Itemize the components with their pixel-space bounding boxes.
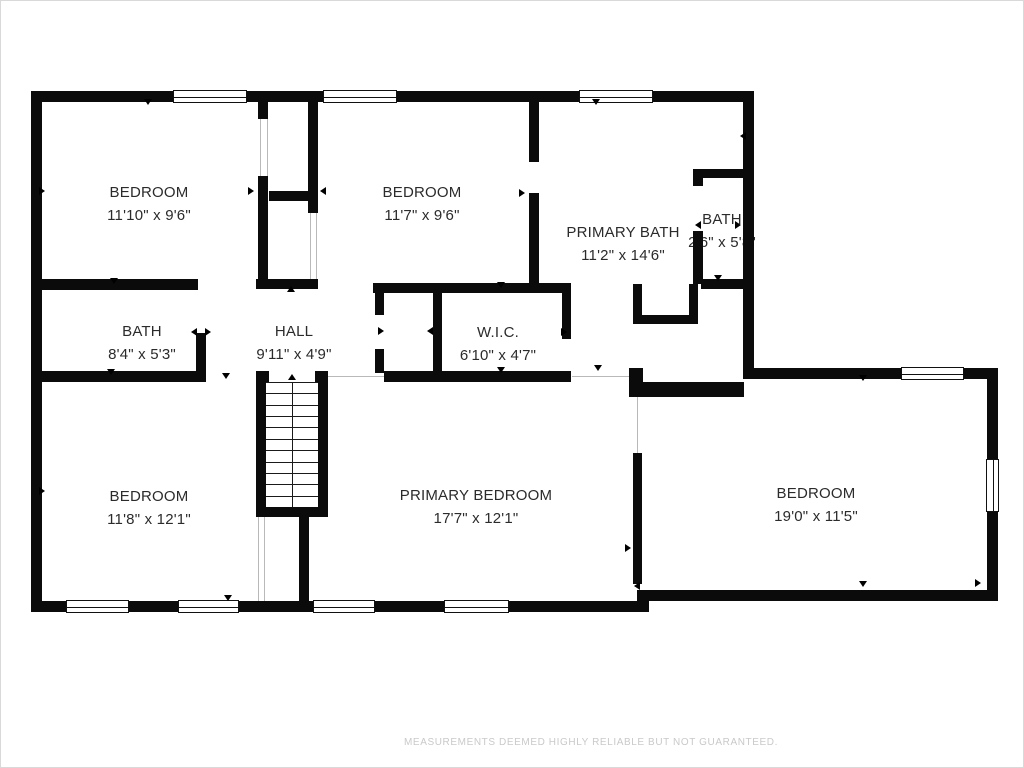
door-swing-arrow — [519, 189, 525, 197]
door-swing-arrow — [248, 187, 254, 195]
opening-line — [260, 119, 261, 176]
wall-segment — [299, 517, 309, 612]
wall-segment — [693, 231, 703, 284]
room-name: BEDROOM — [107, 181, 191, 204]
room-dimensions: 17'7" x 12'1" — [400, 507, 552, 530]
wall-segment — [31, 371, 206, 382]
room-dimensions: 11'10" x 9'6" — [107, 204, 191, 227]
window-mullion-line — [179, 607, 238, 608]
opening-line — [267, 119, 268, 176]
window-symbol — [986, 459, 999, 512]
door-swing-arrow — [740, 132, 746, 140]
opening-line — [328, 376, 385, 377]
window-mullion-line — [993, 460, 994, 511]
room-name: PRIMARY BEDROOM — [400, 484, 552, 507]
door-swing-arrow — [427, 327, 433, 335]
room-name: BEDROOM — [107, 485, 191, 508]
disclaimer-text: MEASUREMENTS DEEMED HIGHLY RELIABLE BUT … — [404, 737, 778, 748]
room-label-bedroom-bottom-left: BEDROOM 11'8" x 12'1" — [107, 485, 191, 531]
wall-segment — [701, 279, 746, 289]
window-symbol — [901, 367, 964, 380]
door-swing-arrow — [110, 278, 118, 284]
wall-segment — [373, 283, 571, 293]
room-label-hall: HALL 9'11" x 4'9" — [256, 320, 331, 366]
room-label-bedroom-right: BEDROOM 19'0" x 11'5" — [774, 482, 858, 528]
window-symbol — [313, 600, 375, 613]
room-label-bath: BATH 8'4" x 5'3" — [108, 320, 176, 366]
stair-up-arrow — [288, 374, 296, 380]
window-symbol — [444, 600, 509, 613]
door-swing-arrow — [975, 579, 981, 587]
door-swing-arrow — [695, 221, 701, 229]
door-swing-arrow — [625, 544, 631, 552]
wall-segment — [308, 102, 318, 213]
room-label-primary-bedroom: PRIMARY BEDROOM 17'7" x 12'1" — [400, 484, 552, 530]
door-swing-arrow — [107, 369, 115, 375]
window-mullion-line — [314, 607, 374, 608]
door-swing-arrow — [39, 187, 45, 195]
door-swing-arrow — [191, 328, 197, 336]
room-dimensions: 9'11" x 4'9" — [256, 343, 331, 366]
door-swing-arrow — [634, 582, 640, 590]
room-name: BATH — [108, 320, 176, 343]
window-mullion-line — [174, 97, 246, 98]
room-dimensions: 19'0" x 11'5" — [774, 505, 858, 528]
wall-segment — [529, 193, 539, 288]
opening-line — [572, 376, 629, 377]
wall-segment — [375, 293, 384, 315]
floor-plan: BEDROOM 11'10" x 9'6" BEDROOM 11'7" x 9'… — [0, 0, 1024, 768]
wall-segment — [384, 371, 571, 382]
window-mullion-line — [902, 374, 963, 375]
opening-line — [258, 517, 259, 601]
door-swing-arrow — [378, 327, 384, 335]
door-swing-arrow — [287, 286, 295, 292]
room-dimensions: 11'7" x 9'6" — [383, 204, 462, 227]
room-name: HALL — [256, 320, 331, 343]
wall-segment — [633, 315, 698, 324]
door-swing-arrow — [592, 99, 600, 105]
wall-segment — [196, 333, 206, 375]
opening-line — [264, 517, 265, 601]
window-symbol — [178, 600, 239, 613]
room-name: BEDROOM — [383, 181, 462, 204]
door-swing-arrow — [714, 275, 722, 281]
wall-segment — [637, 590, 998, 601]
room-name: PRIMARY BATH — [566, 221, 679, 244]
room-label-bedroom-top-left: BEDROOM 11'10" x 9'6" — [107, 181, 191, 227]
window-symbol — [323, 90, 397, 103]
room-dimensions: 8'4" x 5'3" — [108, 343, 176, 366]
wall-segment — [633, 453, 642, 584]
wall-segment — [258, 176, 268, 279]
window-symbol — [579, 90, 653, 103]
wall-segment — [529, 102, 539, 162]
door-swing-arrow — [561, 328, 567, 336]
door-swing-arrow — [497, 282, 505, 288]
room-dimensions: 6'10" x 4'7" — [460, 344, 536, 367]
door-swing-arrow — [735, 221, 741, 229]
door-swing-arrow — [859, 581, 867, 587]
door-swing-arrow — [222, 373, 230, 379]
wall-segment — [269, 191, 308, 201]
wall-segment — [318, 373, 328, 517]
door-swing-arrow — [224, 595, 232, 601]
room-dimensions: 11'8" x 12'1" — [107, 508, 191, 531]
wall-segment — [256, 507, 328, 517]
window-mullion-line — [580, 97, 652, 98]
door-swing-arrow — [594, 365, 602, 371]
wall-segment — [693, 169, 703, 186]
door-swing-arrow — [320, 187, 326, 195]
room-name: BEDROOM — [774, 482, 858, 505]
window-symbol — [66, 600, 129, 613]
opening-line — [316, 213, 317, 279]
room-label-bedroom-top-middle: BEDROOM 11'7" x 9'6" — [383, 181, 462, 227]
wall-segment — [375, 349, 384, 373]
window-symbol — [173, 90, 247, 103]
stair-direction-line — [292, 382, 293, 507]
window-mullion-line — [67, 607, 128, 608]
wall-segment — [31, 91, 42, 612]
wall-segment — [643, 382, 744, 397]
wall-segment — [258, 102, 268, 119]
opening-line — [310, 213, 311, 279]
door-swing-arrow — [859, 375, 867, 381]
room-name: W.I.C. — [460, 321, 536, 344]
room-label-primary-bath: PRIMARY BATH 11'2" x 14'6" — [566, 221, 679, 267]
wall-segment — [433, 293, 442, 373]
door-swing-arrow — [144, 99, 152, 105]
room-label-wic: W.I.C. 6'10" x 4'7" — [460, 321, 536, 367]
wall-segment — [256, 373, 266, 517]
door-swing-arrow — [39, 487, 45, 495]
room-dimensions: 11'2" x 14'6" — [566, 244, 679, 267]
window-mullion-line — [324, 97, 396, 98]
window-mullion-line — [445, 607, 508, 608]
door-swing-arrow — [205, 328, 211, 336]
door-swing-arrow — [497, 367, 505, 373]
opening-line — [637, 397, 638, 453]
wall-segment — [629, 368, 643, 397]
